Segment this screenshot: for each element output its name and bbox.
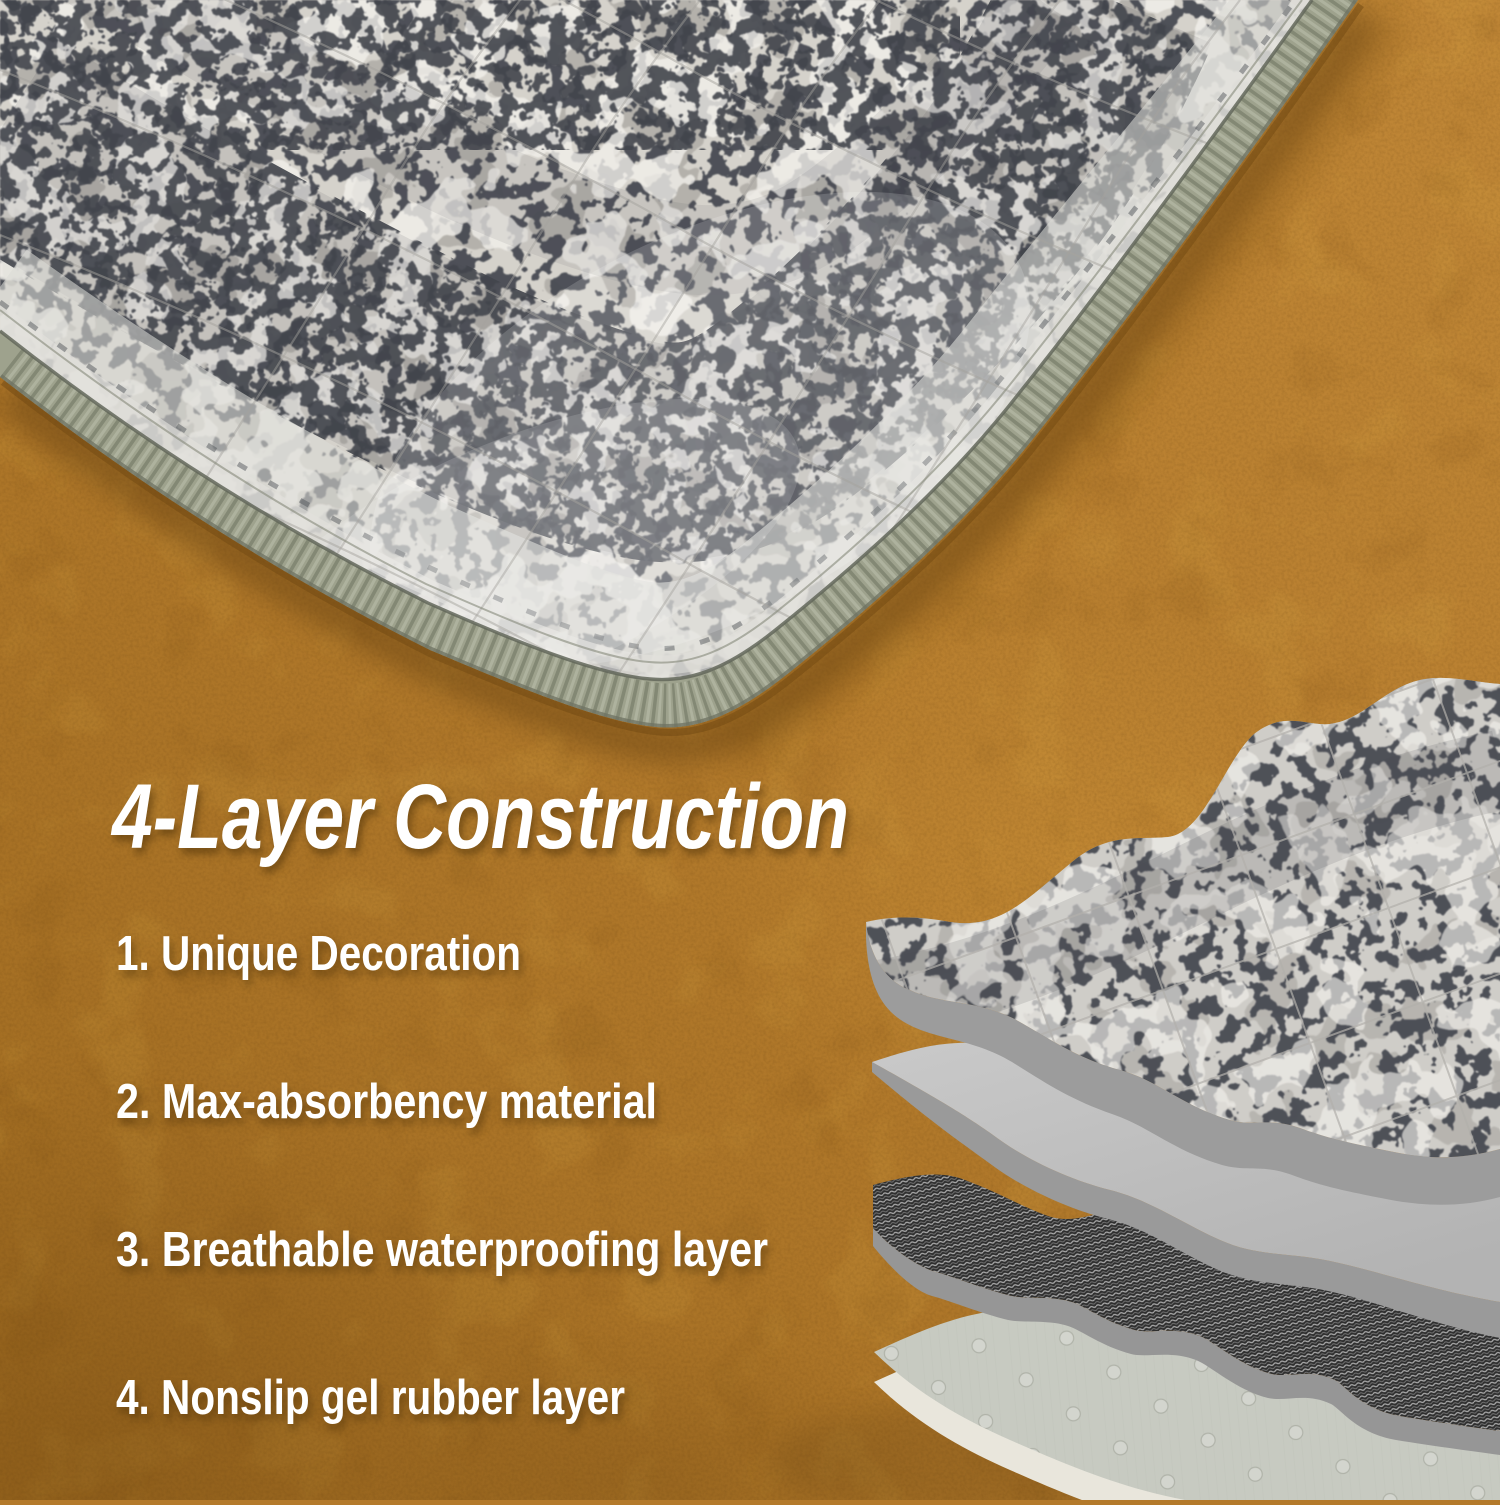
svg-text:2. Max-absorbency material: 2. Max-absorbency material — [116, 1075, 657, 1129]
svg-text:4. Nonslip gel rubber layer: 4. Nonslip gel rubber layer — [116, 1371, 625, 1425]
svg-text:1. Unique Decoration: 1. Unique Decoration — [116, 927, 521, 981]
svg-text:4-Layer Construction: 4-Layer Construction — [110, 766, 849, 868]
svg-text:3. Breathable waterproofing la: 3. Breathable waterproofing layer — [116, 1223, 768, 1277]
